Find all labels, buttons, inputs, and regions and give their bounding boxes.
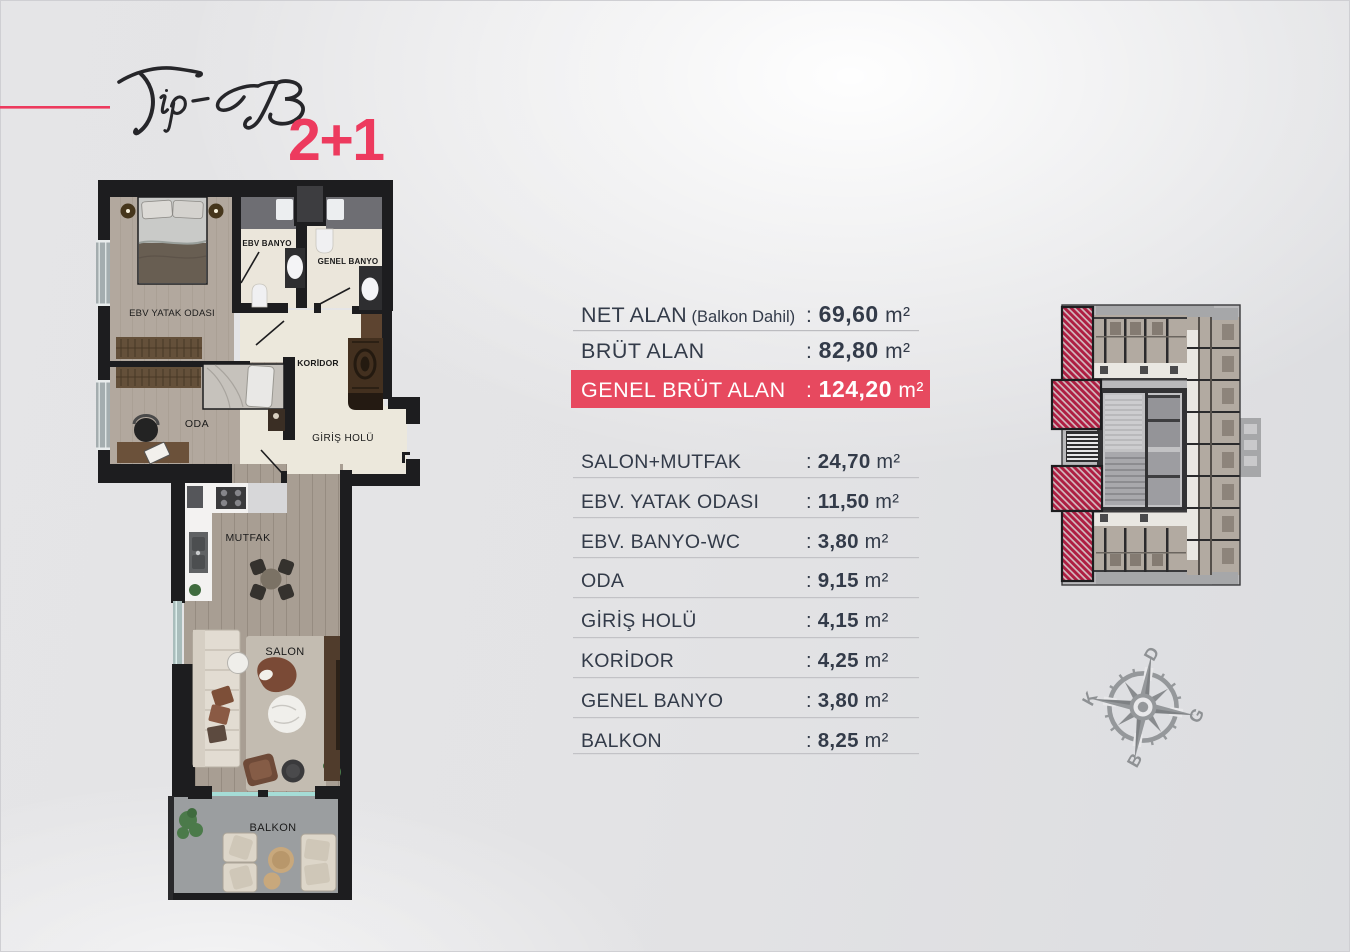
- svg-text:2+1: 2+1: [288, 107, 384, 173]
- svg-text:: 124,20 m²: : 124,20 m²: [806, 376, 924, 402]
- svg-text:NET ALAN (Balkon Dahil): NET ALAN (Balkon Dahil): [581, 303, 795, 327]
- svg-text:BRÜT ALAN: BRÜT ALAN: [581, 339, 705, 363]
- svg-text:EBV. BANYO-WC: EBV. BANYO-WC: [581, 531, 740, 553]
- svg-text:MUTFAK: MUTFAK: [226, 532, 271, 544]
- svg-text:KORİDOR: KORİDOR: [297, 358, 339, 368]
- svg-text:: 82,80 m²: : 82,80 m²: [806, 337, 911, 363]
- svg-text:SALON: SALON: [265, 646, 304, 658]
- svg-text:K: K: [1078, 688, 1102, 709]
- svg-text:: 9,15 m²: : 9,15 m²: [806, 569, 889, 592]
- svg-text:SALON+MUTFAK: SALON+MUTFAK: [581, 451, 741, 473]
- svg-text:: 69,60 m²: : 69,60 m²: [806, 301, 911, 327]
- svg-text:GİRİŞ HOLÜ: GİRİŞ HOLÜ: [581, 609, 697, 632]
- svg-text:EBV YATAK ODASI: EBV YATAK ODASI: [129, 308, 215, 319]
- svg-text:ODA: ODA: [185, 418, 209, 430]
- svg-text:GENEL BRÜT ALAN: GENEL BRÜT ALAN: [581, 378, 786, 402]
- svg-text:G: G: [1184, 705, 1208, 727]
- svg-text:BALKON: BALKON: [249, 822, 296, 834]
- svg-text:GENEL BANYO: GENEL BANYO: [581, 690, 723, 712]
- svg-text:KORİDOR: KORİDOR: [581, 649, 674, 672]
- svg-text:: 3,80 m²: : 3,80 m²: [806, 689, 889, 712]
- svg-text:: 4,25 m²: : 4,25 m²: [806, 649, 889, 672]
- svg-text:ODA: ODA: [581, 570, 624, 592]
- svg-text:: 4,15 m²: : 4,15 m²: [806, 609, 889, 632]
- svg-text:GİRİŞ HOLÜ: GİRİŞ HOLÜ: [312, 431, 374, 444]
- svg-text:GENEL BANYO: GENEL BANYO: [318, 257, 379, 266]
- svg-text:: 8,25 m²: : 8,25 m²: [806, 729, 889, 752]
- svg-text:: 24,70 m²: : 24,70 m²: [806, 450, 900, 473]
- svg-text:EBV. YATAK ODASI: EBV. YATAK ODASI: [581, 491, 759, 513]
- svg-text:B: B: [1123, 750, 1147, 771]
- svg-text:EBV BANYO: EBV BANYO: [242, 239, 291, 248]
- svg-text:: 11,50 m²: : 11,50 m²: [806, 490, 899, 513]
- svg-text:: 3,80 m²: : 3,80 m²: [806, 530, 889, 553]
- svg-text:D: D: [1140, 643, 1164, 664]
- svg-text:BALKON: BALKON: [581, 730, 662, 752]
